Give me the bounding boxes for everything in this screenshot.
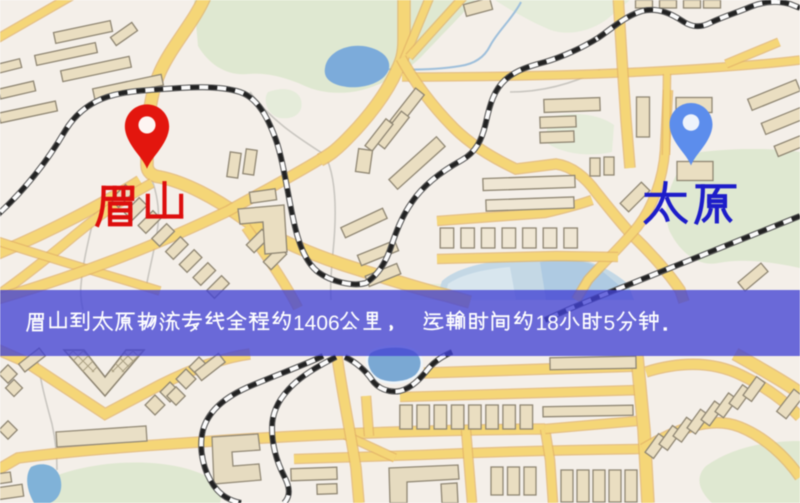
svg-text:18: 18 bbox=[536, 312, 559, 335]
svg-text:1406: 1406 bbox=[293, 312, 340, 335]
svg-text:5: 5 bbox=[604, 312, 616, 335]
